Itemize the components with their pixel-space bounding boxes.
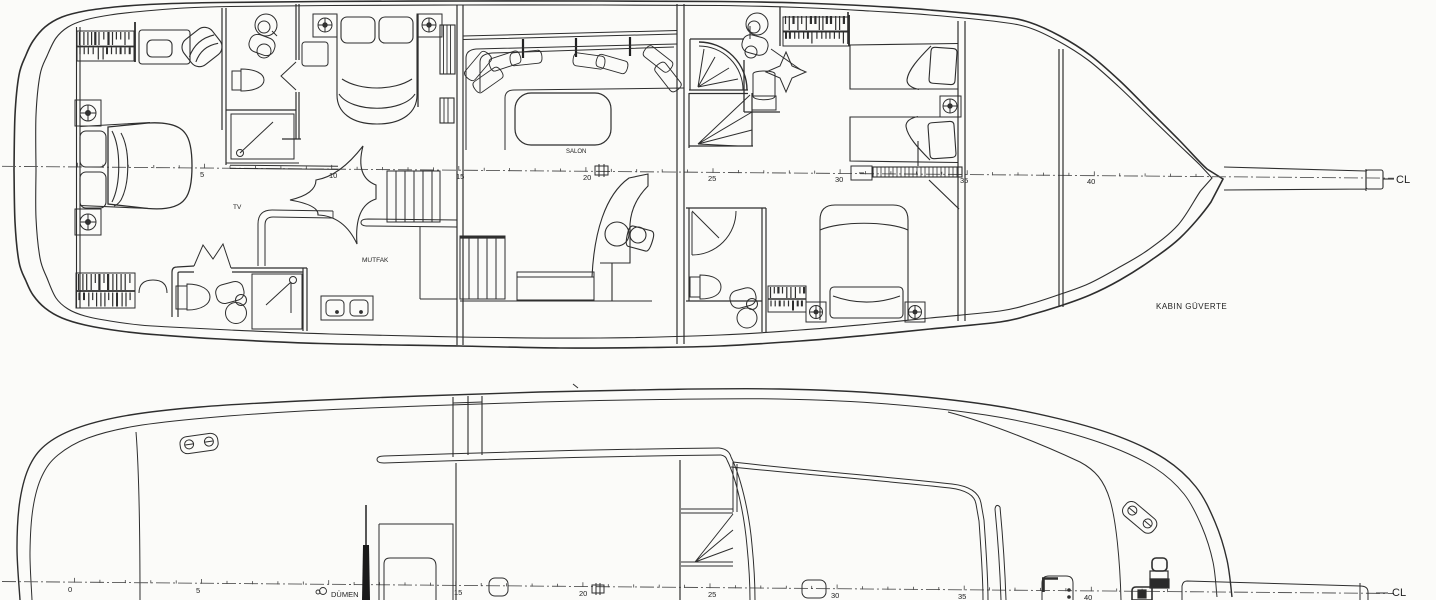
- svg-text:20: 20: [583, 173, 591, 182]
- svg-text:25: 25: [708, 174, 716, 183]
- svg-text:30: 30: [831, 591, 839, 600]
- svg-text:5: 5: [196, 586, 200, 595]
- svg-text:25: 25: [708, 590, 716, 599]
- svg-text:DÜMEN: DÜMEN: [331, 590, 359, 599]
- svg-text:KABIN GÜVERTE: KABIN GÜVERTE: [1156, 302, 1227, 311]
- svg-text:40: 40: [1087, 177, 1095, 186]
- svg-text:15: 15: [454, 588, 462, 597]
- svg-text:CL: CL: [1396, 174, 1410, 186]
- svg-text:20: 20: [579, 589, 587, 598]
- svg-text:0: 0: [68, 585, 72, 594]
- svg-text:30: 30: [835, 175, 843, 184]
- svg-text:TV: TV: [233, 204, 242, 211]
- svg-text:SALON: SALON: [566, 149, 586, 155]
- svg-text:CL: CL: [1392, 587, 1406, 599]
- svg-text:40: 40: [1084, 593, 1092, 600]
- svg-text:MUTFAK: MUTFAK: [362, 257, 389, 264]
- svg-text:35: 35: [958, 592, 966, 600]
- svg-text:5: 5: [200, 170, 204, 179]
